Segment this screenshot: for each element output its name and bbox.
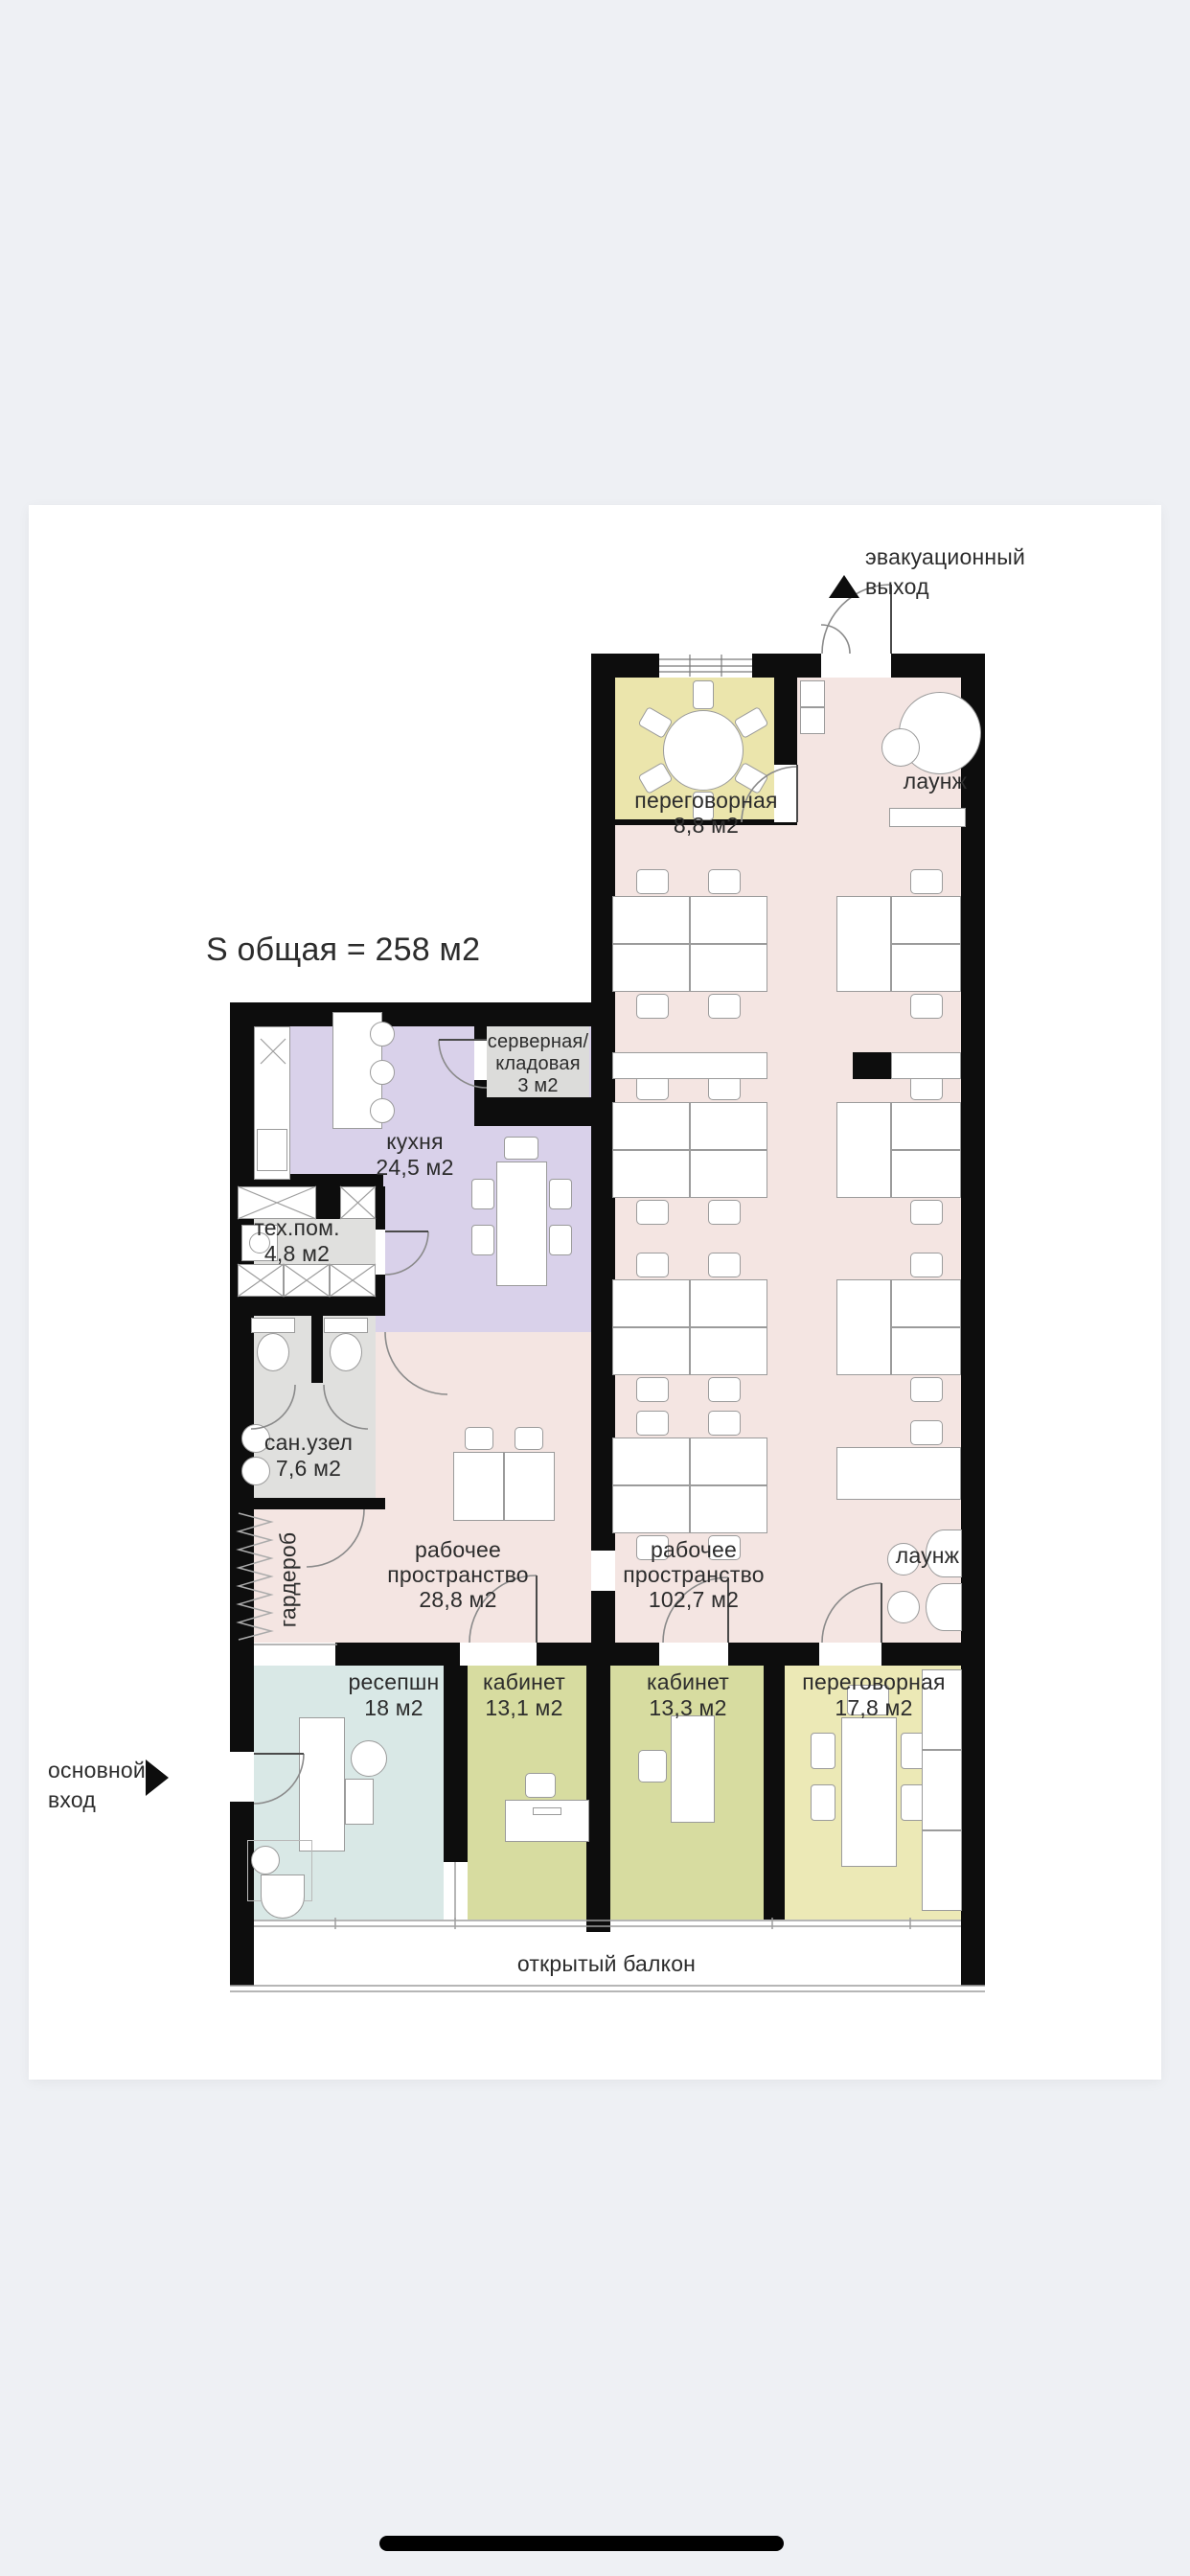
label-workspace-large: рабочее пространство 102,7 м2: [607, 1537, 780, 1612]
label-lounge-bottom: лаунж: [893, 1543, 962, 1569]
label-lounge-top: лаунж: [891, 769, 979, 794]
label-office1: кабинет 13,1 м2: [447, 1669, 601, 1721]
label-meeting-bottom: переговорная 17,8 м2: [797, 1669, 950, 1721]
label-workspace-small: рабочее пространство 28,8 м2: [372, 1537, 544, 1612]
label-tech: тех.пом. 4,8 м2: [230, 1215, 364, 1267]
label-balcony: открытый балкон: [511, 1951, 702, 1977]
main-entrance-label: основной вход: [48, 1756, 192, 1815]
label-server: серверная/ кладовая 3 м2: [487, 1031, 589, 1097]
label-meeting-top: переговорная 8,8 м2: [615, 788, 797, 838]
evacuation-exit-label: эвакуационный выход: [865, 542, 1086, 602]
label-kitchen: кухня 24,5 м2: [338, 1129, 492, 1181]
label-wardrobe: гардероб: [276, 1528, 302, 1633]
label-wc: сан.узел 7,6 м2: [241, 1430, 376, 1482]
label-office2: кабинет 13,3 м2: [611, 1669, 765, 1721]
labels-layer: S общая = 258 м2 эвакуационный выход осн…: [0, 0, 1190, 2576]
total-area-label: S общая = 258 м2: [206, 931, 618, 968]
